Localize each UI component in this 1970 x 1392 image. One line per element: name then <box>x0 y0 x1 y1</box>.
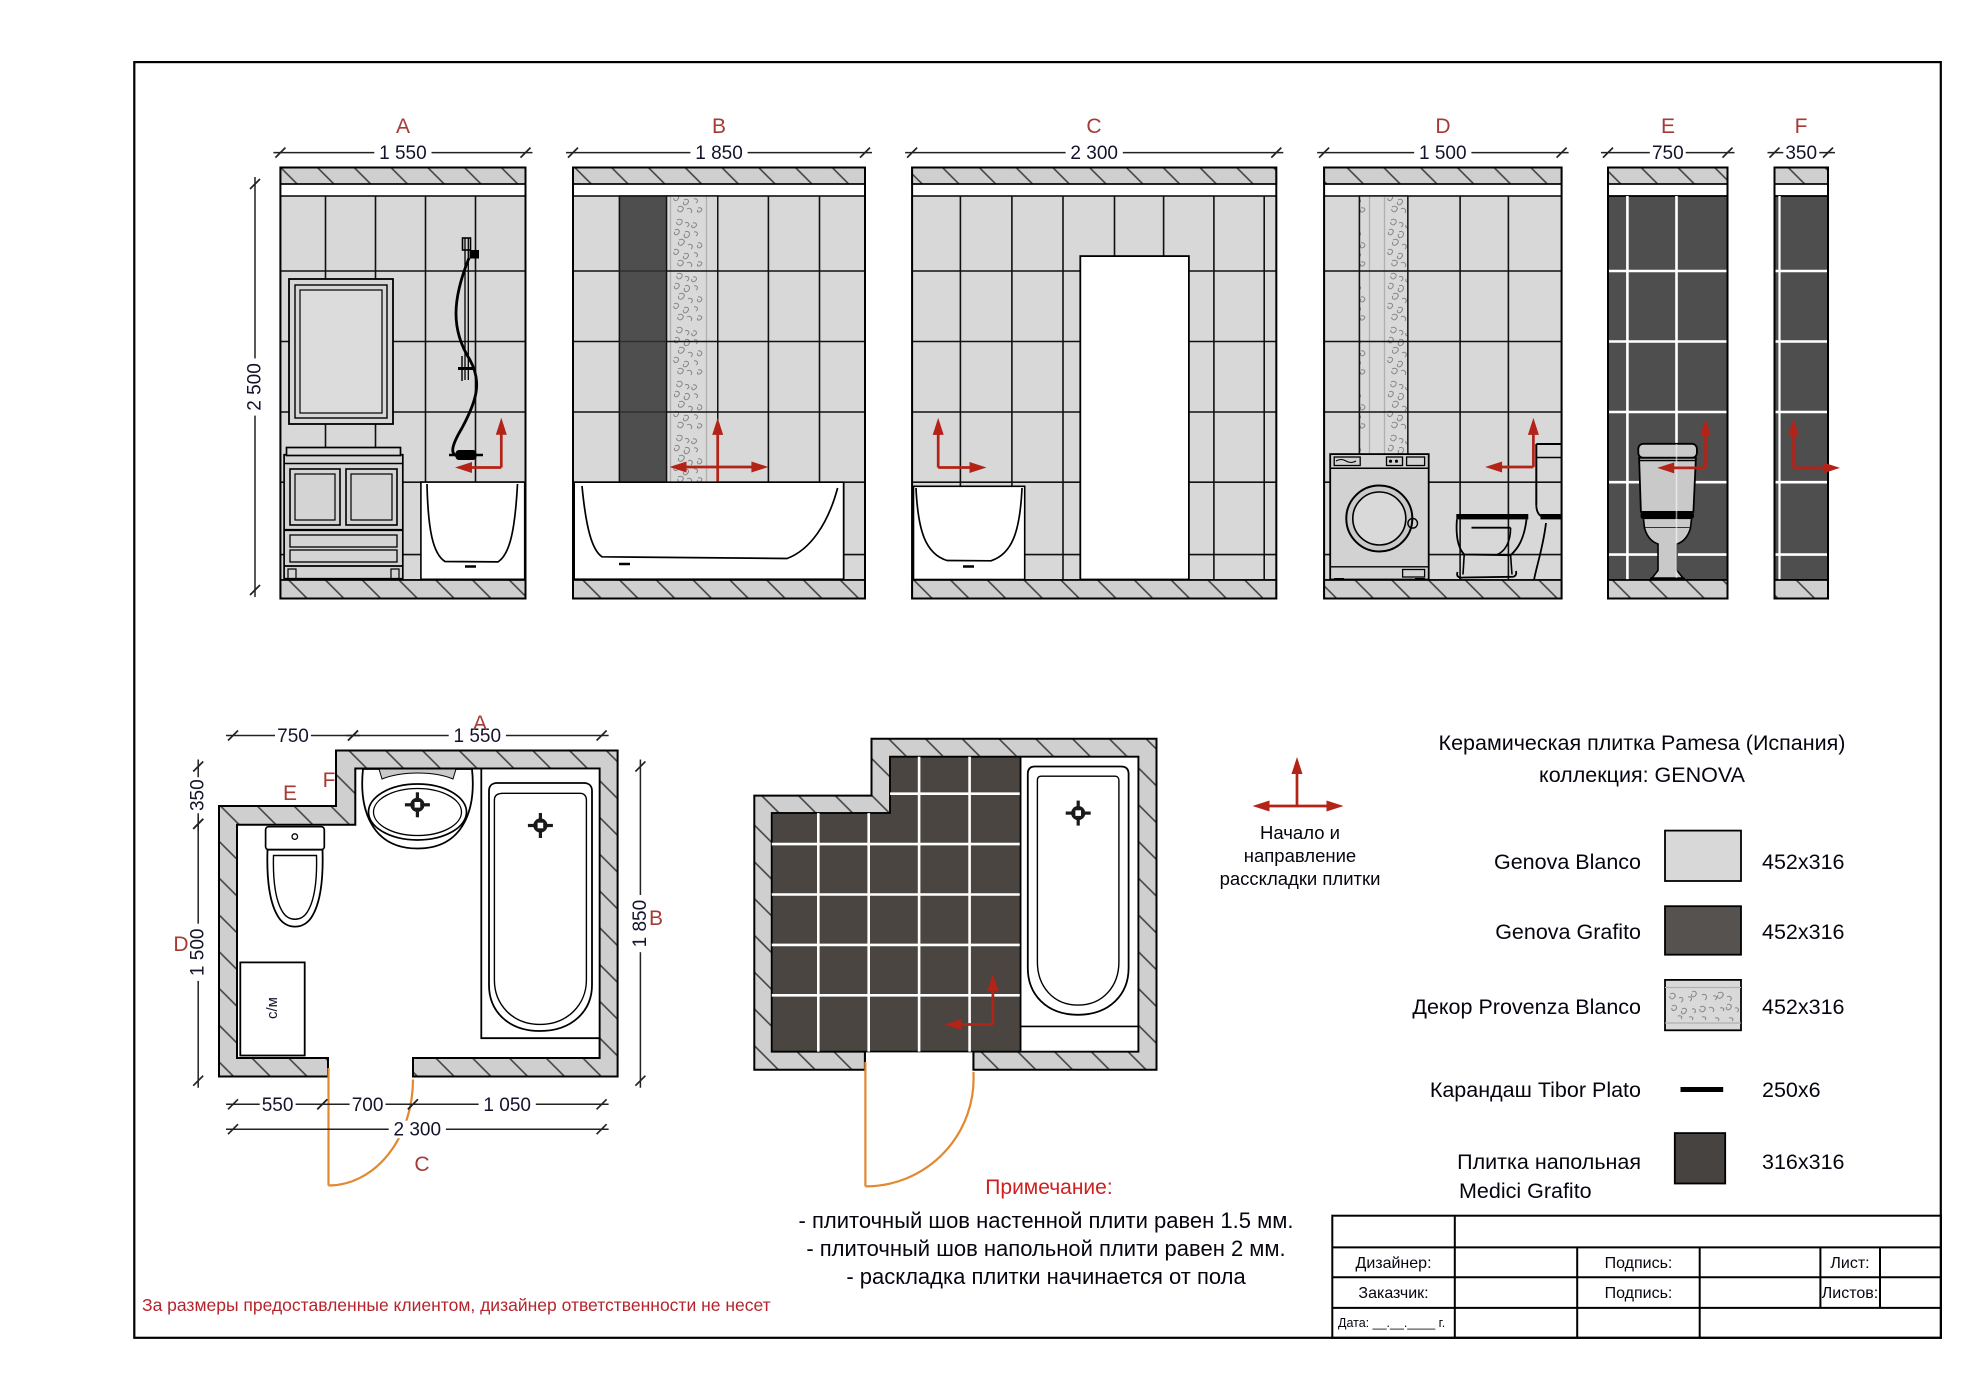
svg-text:1 850: 1 850 <box>695 143 743 164</box>
svg-text:1 500: 1 500 <box>1419 143 1467 164</box>
svg-text:C: C <box>414 1153 429 1176</box>
svg-text:- плиточный шов настенной плит: - плиточный шов настенной плити равен 1.… <box>799 1208 1294 1233</box>
svg-text:Примечание:: Примечание: <box>985 1176 1112 1199</box>
svg-text:250x6: 250x6 <box>1762 1078 1821 1102</box>
svg-text:2 500: 2 500 <box>245 363 266 411</box>
svg-text:Начало и: Начало и <box>1260 822 1340 843</box>
svg-text:Дизайнер:: Дизайнер: <box>1355 1255 1431 1272</box>
svg-text:Карандаш Tibor Plato: Карандаш Tibor Plato <box>1430 1078 1641 1102</box>
svg-text:Декор Provenza Blanco: Декор Provenza Blanco <box>1412 995 1641 1019</box>
svg-text:2 300: 2 300 <box>1070 143 1118 164</box>
svg-text:D: D <box>1435 115 1450 138</box>
svg-text:Genova Grafito: Genova Grafito <box>1495 920 1641 944</box>
svg-text:1 050: 1 050 <box>483 1095 531 1116</box>
svg-text:D: D <box>173 933 188 956</box>
svg-text:Лист:: Лист: <box>1830 1255 1869 1272</box>
svg-text:расскладки плитки: расскладки плитки <box>1220 868 1381 889</box>
svg-text:F: F <box>1795 115 1808 138</box>
svg-text:1 500: 1 500 <box>188 929 209 977</box>
svg-text:452x316: 452x316 <box>1762 920 1845 944</box>
svg-text:Genova Blanco: Genova Blanco <box>1494 850 1641 874</box>
svg-text:1 850: 1 850 <box>630 900 651 948</box>
svg-text:Керамическая плитка Pamesa (Ис: Керамическая плитка Pamesa (Испания) <box>1439 731 1846 755</box>
svg-text:- плиточный шов напольной плит: - плиточный шов напольной плити равен 2 … <box>806 1236 1285 1261</box>
svg-text:- раскладка плитки начинается: - раскладка плитки начинается от пола <box>846 1264 1246 1289</box>
svg-text:750: 750 <box>1652 143 1684 164</box>
svg-text:Плитка напольная: Плитка напольная <box>1457 1150 1641 1174</box>
svg-text:Дата: __.__.____ г.: Дата: __.__.____ г. <box>1338 1316 1445 1330</box>
svg-text:Medici Grafito: Medici Grafito <box>1459 1179 1592 1203</box>
svg-text:F: F <box>323 769 336 792</box>
svg-text:коллекция: GENOVA: коллекция: GENOVA <box>1539 763 1746 787</box>
svg-text:с/м: с/м <box>264 997 281 1019</box>
svg-text:B: B <box>712 115 726 138</box>
svg-text:550: 550 <box>262 1095 294 1116</box>
svg-text:C: C <box>1086 115 1101 138</box>
svg-text:700: 700 <box>352 1095 384 1116</box>
svg-text:750: 750 <box>277 726 309 747</box>
svg-text:A: A <box>473 712 487 735</box>
svg-text:A: A <box>396 115 410 138</box>
svg-text:За размеры предоставленные кли: За размеры предоставленные клиентом, диз… <box>142 1295 771 1315</box>
svg-text:Заказчик:: Заказчик: <box>1358 1285 1428 1302</box>
svg-text:2 300: 2 300 <box>394 1120 442 1141</box>
svg-text:Подпись:: Подпись: <box>1605 1285 1673 1302</box>
svg-text:Листов:: Листов: <box>1822 1285 1878 1302</box>
svg-text:E: E <box>1661 115 1675 138</box>
svg-text:316x316: 316x316 <box>1762 1150 1845 1174</box>
svg-text:B: B <box>649 907 663 930</box>
svg-text:452x316: 452x316 <box>1762 850 1845 874</box>
svg-text:направление: направление <box>1244 845 1356 866</box>
svg-text:452x316: 452x316 <box>1762 995 1845 1019</box>
svg-text:350: 350 <box>188 779 209 811</box>
svg-text:E: E <box>283 782 297 805</box>
svg-text:Подпись:: Подпись: <box>1605 1255 1673 1272</box>
svg-text:350: 350 <box>1785 143 1817 164</box>
svg-text:1 550: 1 550 <box>379 143 427 164</box>
